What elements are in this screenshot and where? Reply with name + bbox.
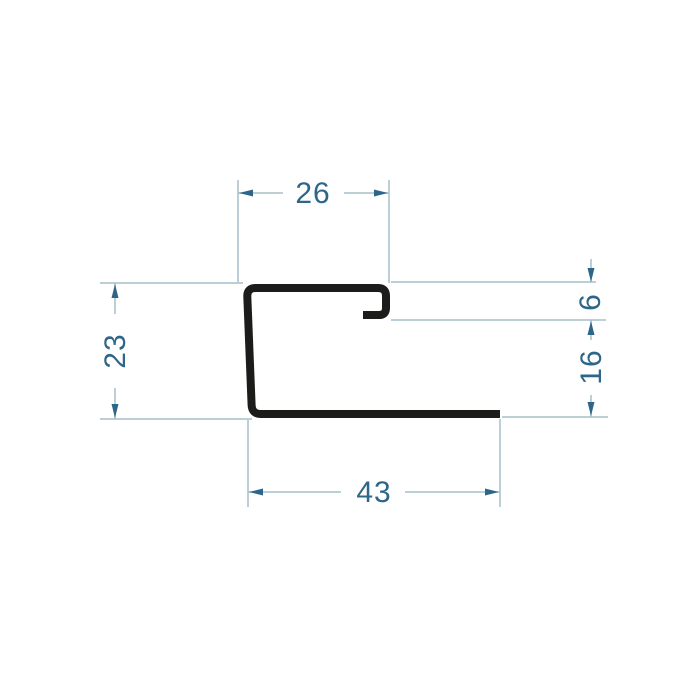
arrowhead-up-icon [588,321,595,335]
arrowhead-left-icon [249,489,263,496]
dim-right-height: 16 [502,320,608,417]
arrowhead-right-icon [374,190,388,197]
arrowhead-down-icon [588,268,595,282]
arrowhead-down-icon [588,402,595,416]
dim-top-width: 26 [238,177,389,283]
dim-bottom-width: 43 [248,419,500,509]
arrowhead-down-icon [112,404,119,418]
dim-label-bottom-width: 43 [356,476,391,509]
dim-label-right-height: 16 [575,349,608,384]
dim-lip-drop: 6 [391,259,607,320]
arrowhead-left-icon [239,190,253,197]
dim-label-height-left: 23 [99,333,132,368]
dim-label-top-width: 26 [295,177,330,210]
drawing-canvas: 26 23 6 16 43 [0,0,700,700]
dim-label-lip-drop: 6 [574,293,607,311]
technical-drawing: 26 23 6 16 43 [0,0,700,700]
dim-height-left: 23 [99,283,252,419]
arrowhead-up-icon [112,284,119,298]
arrowhead-right-icon [485,489,499,496]
profile-outline [247,288,500,414]
